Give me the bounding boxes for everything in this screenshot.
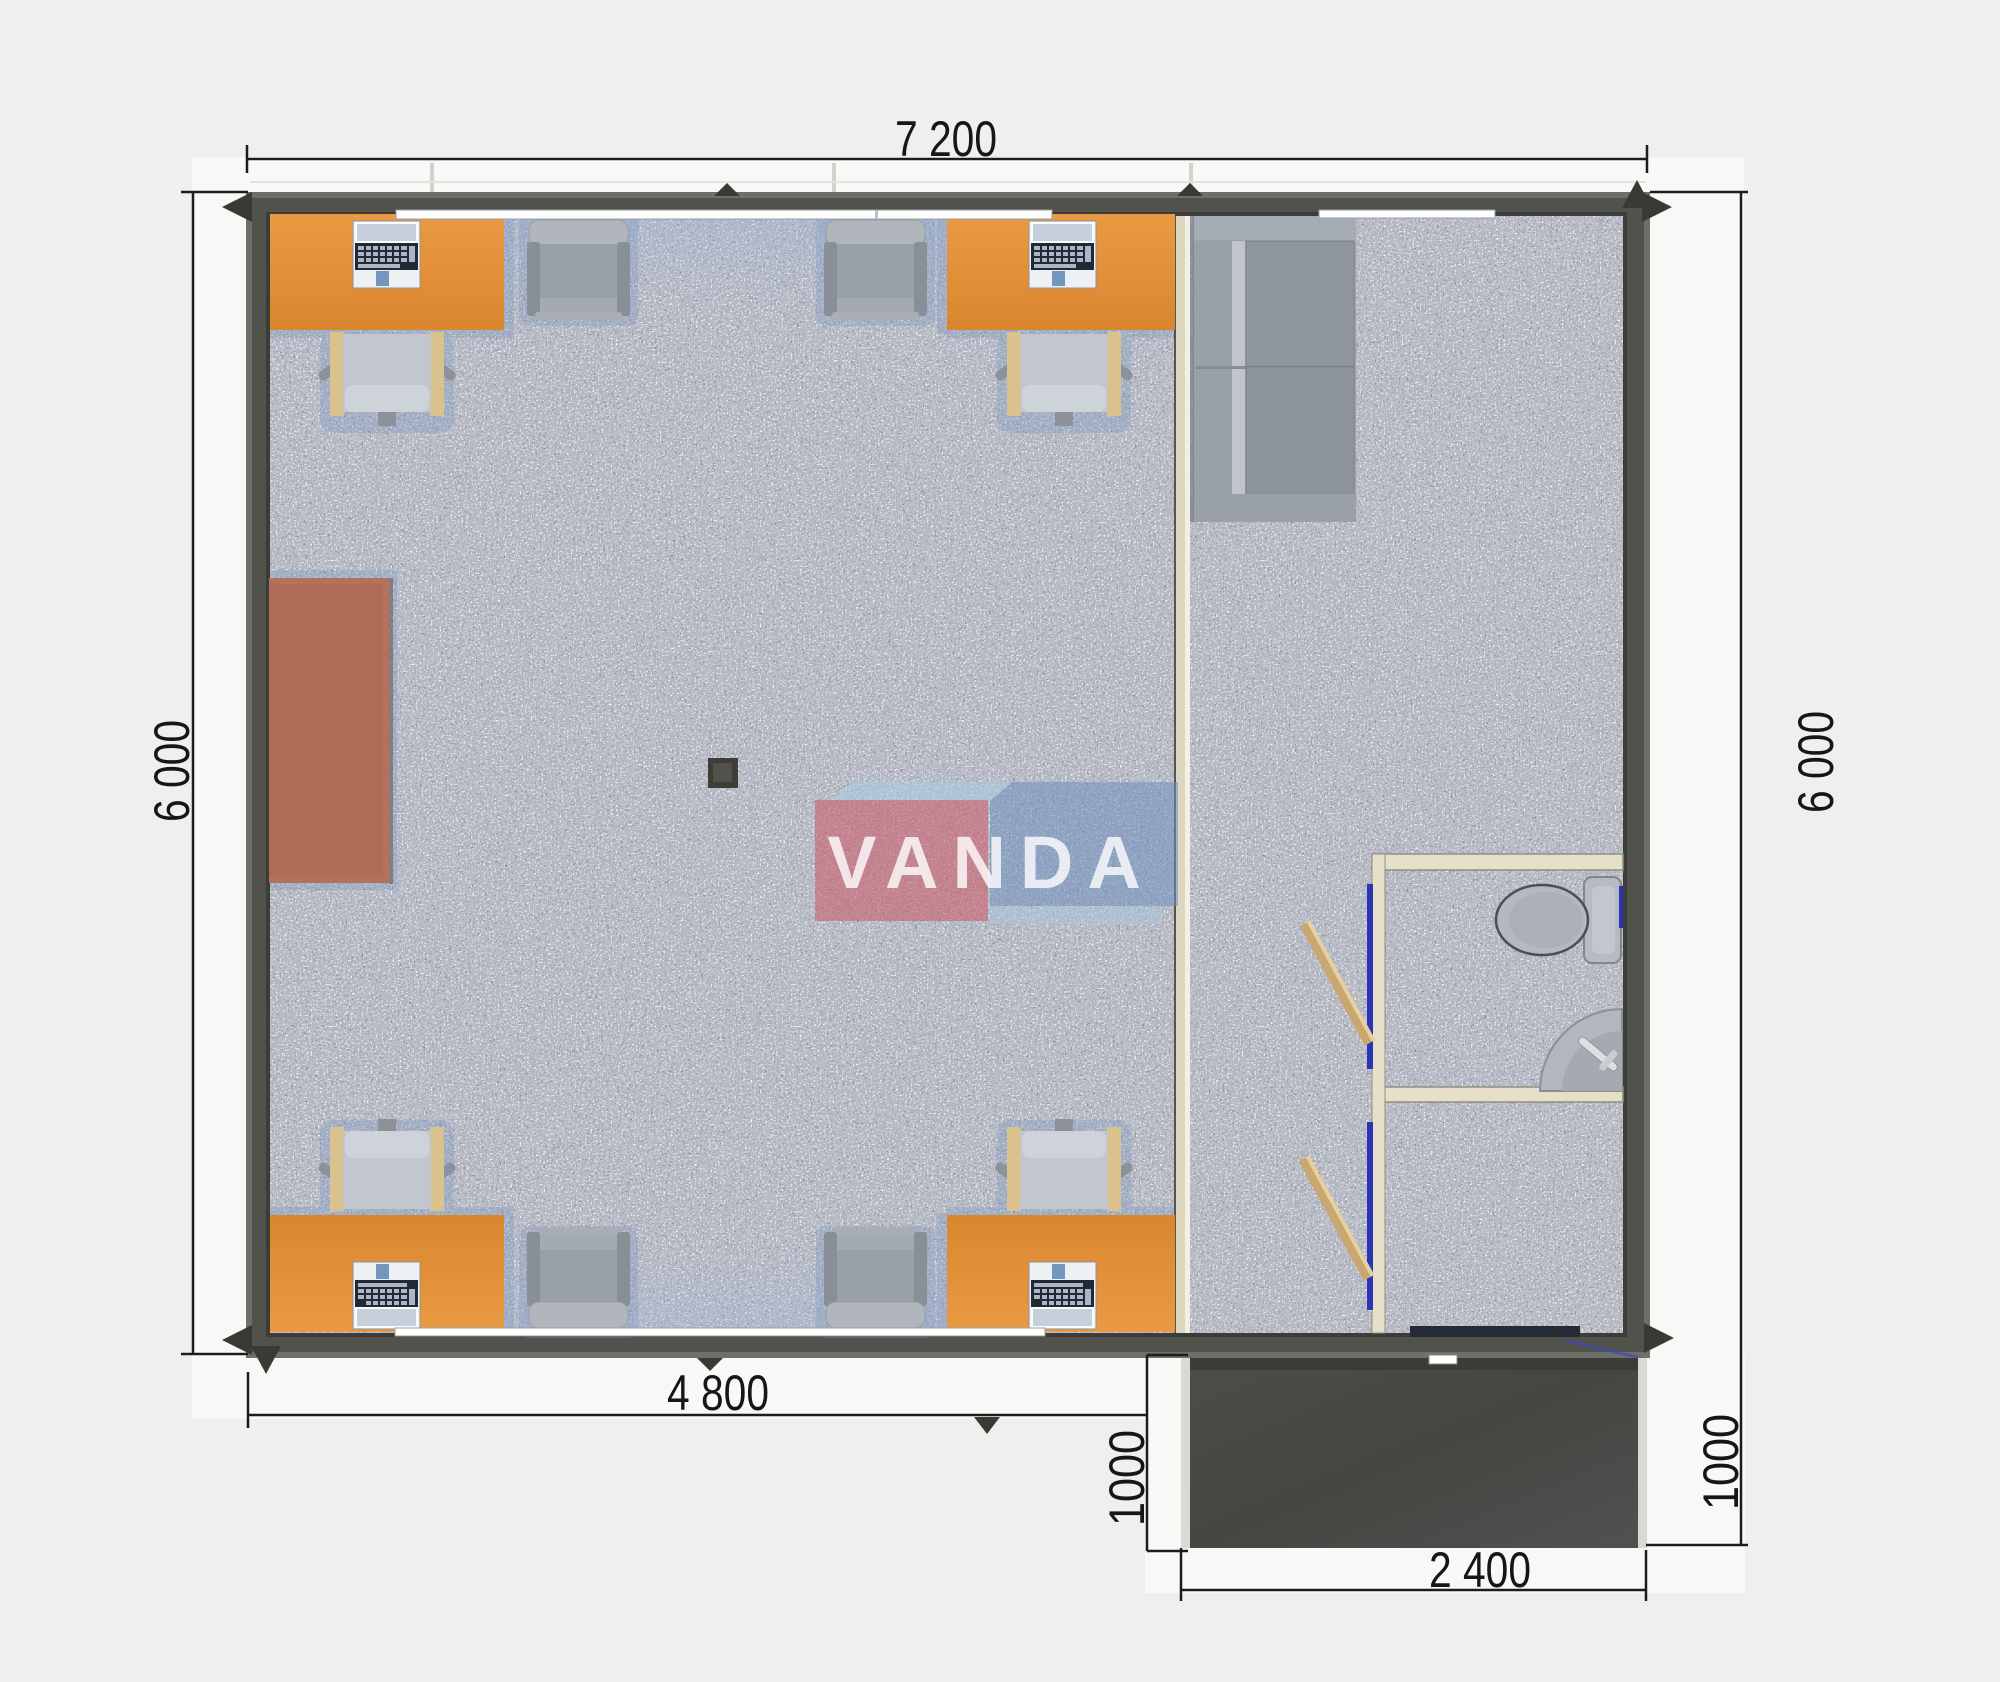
svg-text:VANDA: VANDA (827, 821, 1155, 904)
svg-text:6 000: 6 000 (144, 720, 200, 822)
svg-text:1000: 1000 (1693, 1414, 1749, 1510)
svg-text:4 800: 4 800 (667, 1365, 769, 1421)
svg-text:2 400: 2 400 (1429, 1542, 1531, 1598)
svg-text:6 000: 6 000 (1788, 711, 1844, 813)
svg-text:7 200: 7 200 (895, 111, 997, 167)
svg-text:1000: 1000 (1099, 1430, 1155, 1526)
